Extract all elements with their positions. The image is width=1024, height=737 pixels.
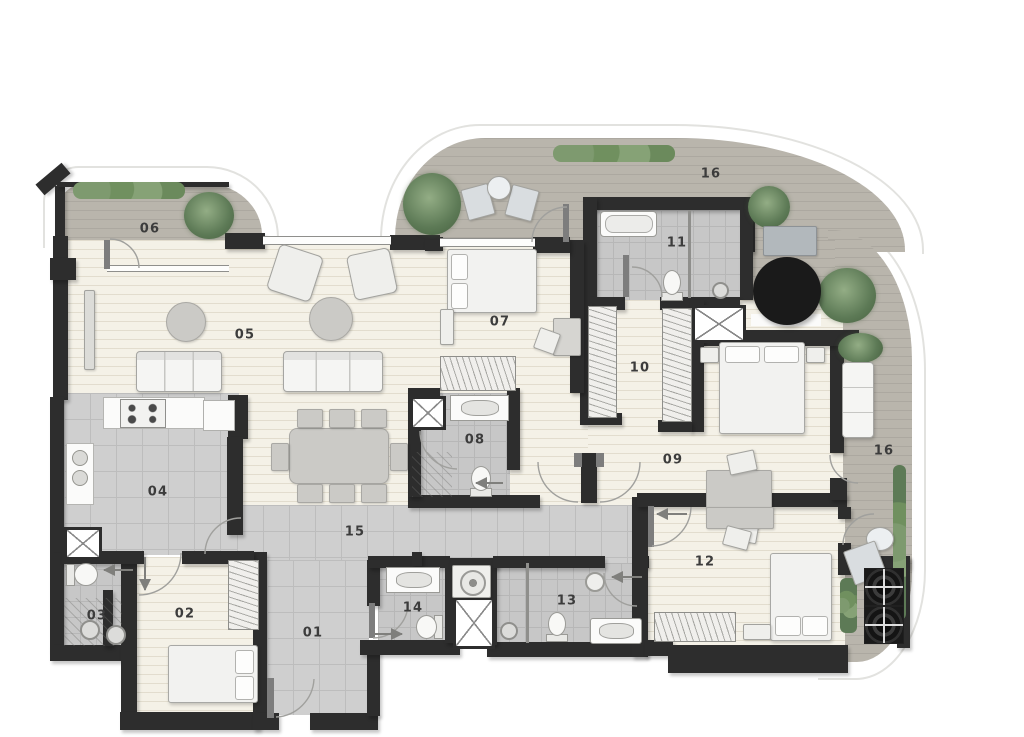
hedge-plant-icon (73, 182, 185, 199)
room-02-label: 02 (175, 607, 196, 622)
nightstand-icon (806, 347, 825, 363)
dining-chair-icon (390, 443, 408, 471)
bed-icon (770, 553, 832, 641)
plant-icon (838, 333, 883, 363)
shower-head-icon (712, 282, 729, 299)
toilet-bowl-icon (663, 270, 681, 295)
wall (225, 233, 265, 249)
terrace-table-icon (487, 176, 511, 200)
toilet-icon (468, 466, 492, 496)
planter-box-icon (763, 226, 817, 256)
wall (487, 642, 647, 657)
toilet-bowl-icon (471, 466, 491, 491)
toilet-icon (545, 612, 567, 640)
plant-icon (184, 192, 234, 239)
shower-head-icon (106, 625, 126, 645)
sink-bowl-icon (72, 470, 88, 486)
shower-glass (526, 563, 529, 643)
basin-icon (599, 623, 634, 639)
room-04-label: 04 (148, 485, 169, 500)
shaft-icon (410, 396, 446, 430)
pillow-icon (775, 616, 801, 636)
armchair-icon (346, 247, 399, 301)
wall (740, 210, 753, 300)
wardrobe-icon (654, 612, 736, 642)
dining-table-icon (289, 428, 389, 484)
bed-icon (447, 249, 537, 313)
wall (838, 507, 851, 519)
wall (227, 437, 243, 535)
door-leaf (267, 678, 274, 718)
wall (50, 258, 76, 280)
door-leaf (623, 255, 629, 297)
shower-glass (688, 210, 691, 298)
dining-chair-icon (329, 484, 355, 503)
basin-icon (461, 400, 499, 416)
room-12-label: 12 (695, 555, 716, 570)
room-01-label: 01 (303, 626, 324, 641)
wall (412, 552, 422, 566)
room-16-top-label: 16 (701, 167, 722, 182)
wall (570, 240, 584, 393)
window (107, 265, 229, 272)
room-03-label: 03 (87, 609, 108, 624)
dining-chair-icon (329, 409, 355, 428)
bath-sink-icon (450, 395, 509, 421)
vanity-icon (590, 618, 642, 644)
wall (50, 553, 64, 651)
room-10-label: 10 (630, 361, 651, 376)
door-leaf (369, 603, 375, 638)
toilet-bowl-icon (74, 563, 98, 586)
palm-plant-icon (818, 268, 876, 323)
room-05-label: 05 (235, 328, 256, 343)
pillow-icon (451, 283, 468, 309)
bed-icon (168, 645, 258, 703)
wall (583, 197, 755, 210)
hedge-plant-icon (840, 578, 857, 633)
room-08-label: 08 (465, 433, 486, 448)
dining-chair-icon (361, 484, 387, 503)
toilet-icon (416, 612, 442, 640)
pillow-icon (451, 254, 468, 280)
pillow-icon (764, 346, 799, 363)
door-leaf (648, 506, 654, 547)
room-13-label: 13 (557, 594, 578, 609)
bench-icon (743, 624, 771, 640)
floor-plan: 01 02 03 04 05 06 07 08 09 10 11 12 13 1… (0, 0, 1024, 737)
pillow-icon (235, 676, 254, 700)
nightstand-icon (700, 347, 719, 363)
pillow-icon (802, 616, 828, 636)
mirror-icon (585, 572, 605, 592)
toilet-icon (66, 561, 98, 587)
sink-bowl-icon (72, 450, 88, 466)
wall (493, 556, 605, 568)
bed-icon (719, 342, 805, 434)
door-hinge-post (574, 453, 582, 467)
hedge-plant-icon (553, 145, 675, 162)
sofa-icon (283, 351, 383, 392)
room-14-label: 14 (403, 601, 424, 616)
wardrobe-icon (588, 306, 617, 418)
stove-icon (120, 399, 166, 428)
washer-icon (452, 565, 491, 598)
desk-icon (706, 507, 774, 529)
door-leaf (563, 204, 569, 242)
toilet-bowl-icon (416, 615, 437, 639)
wardrobe-icon (440, 356, 516, 391)
side-table-icon (309, 297, 353, 341)
wall (830, 478, 847, 500)
toilet-bowl-icon (548, 612, 566, 636)
fridge-icon (203, 400, 235, 431)
washer-drum-icon (460, 570, 486, 596)
wall (253, 713, 279, 730)
dining-chair-icon (271, 443, 289, 471)
wall (55, 186, 65, 242)
room-07-label: 07 (490, 315, 511, 330)
room-11-label: 11 (667, 236, 688, 251)
wardrobe-icon (228, 560, 259, 630)
window (440, 238, 535, 247)
bath-sink-icon (386, 567, 440, 593)
room-15-label: 15 (345, 525, 366, 540)
basin-icon (396, 572, 432, 588)
wardrobe-icon (662, 308, 692, 422)
ac-unit-icon (864, 568, 904, 606)
sofa-icon (136, 351, 222, 392)
pillow-icon (235, 650, 254, 674)
room-09-label: 09 (663, 453, 684, 468)
ac-unit-icon (864, 606, 904, 644)
shaft-icon (692, 305, 746, 343)
wall (668, 645, 848, 673)
wall (120, 712, 260, 730)
shaft-icon (453, 597, 495, 649)
wall (50, 397, 64, 555)
tv-unit-icon (84, 290, 95, 370)
dining-chair-icon (297, 484, 323, 503)
dining-chair-icon (297, 409, 323, 428)
room-06-label: 06 (140, 222, 161, 237)
door-leaf (104, 240, 110, 269)
shower-head-icon (500, 622, 518, 640)
bench-icon (440, 309, 454, 345)
side-table-icon (166, 302, 206, 342)
wall (581, 453, 597, 503)
pillow-icon (725, 346, 760, 363)
plant-icon (748, 186, 790, 228)
wall (50, 645, 126, 661)
hot-tub-icon (753, 257, 821, 325)
terrace-sofa-icon (842, 362, 874, 438)
palm-plant-icon (403, 173, 461, 235)
shaft-icon (64, 527, 102, 560)
door-hinge-post (596, 453, 604, 467)
dining-chair-icon (361, 409, 387, 428)
toilet-icon (660, 270, 682, 300)
wall (583, 197, 597, 303)
tub-basin-icon (605, 215, 653, 233)
bathtub-icon (600, 211, 657, 237)
room-16-right-label: 16 (874, 444, 895, 459)
shower-icon (412, 452, 452, 497)
